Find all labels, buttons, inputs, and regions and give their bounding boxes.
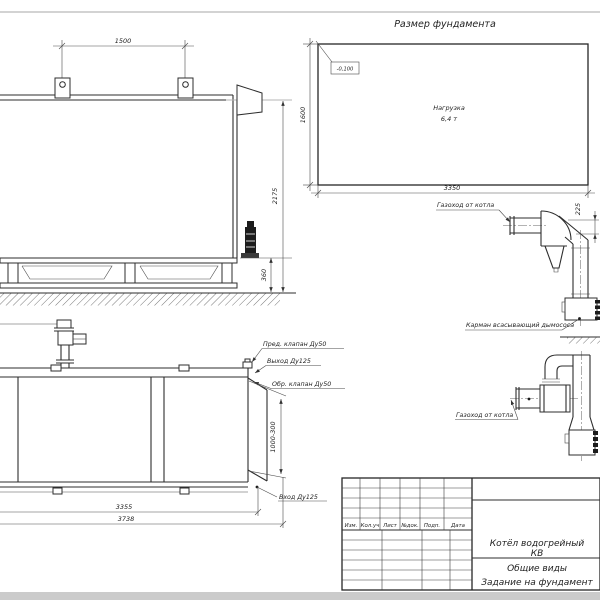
- dim-1600-text: 1600: [299, 107, 307, 124]
- tb-col-data: Дата: [450, 523, 465, 529]
- pocket-label-text: Карман всасывающий дымососа: [466, 322, 574, 329]
- dim-1500-text: 1500: [115, 37, 132, 45]
- flue-lower-duct-label: Газоход от котла: [456, 412, 513, 419]
- dim-3355-text: 3355: [116, 503, 133, 511]
- tb-product-line1: Котёл водогрейный: [490, 539, 585, 549]
- flue-label-upper: Газоход от котла: [436, 202, 510, 222]
- title-block: Изм. Кол.уч Лист №док. Подп. Дата Котёл …: [342, 478, 600, 590]
- elbow: [542, 355, 573, 382]
- dimension-1500: 1500: [53, 37, 194, 80]
- dim-2175-text: 2175: [271, 188, 279, 205]
- dimension-2175: 2175: [240, 101, 292, 292]
- flue-outlet: [237, 85, 262, 115]
- sheet-bottom-edge: [0, 592, 600, 600]
- drawing-canvas: Размер фундамента 1500: [0, 0, 600, 600]
- label-inlet: Вход Ду125: [256, 486, 327, 501]
- horizontal-duct: [516, 385, 570, 412]
- tb-col-list: Лист: [382, 523, 398, 529]
- flue-detail-lower: Газоход от котла: [455, 351, 598, 461]
- base-frame: [0, 258, 237, 288]
- foundation-title: Размер фундамента: [394, 19, 496, 30]
- sheet-top-edge: [0, 11, 600, 13]
- side-view: 1500: [0, 37, 296, 306]
- inlet-text: Вход Ду125: [279, 494, 318, 501]
- label-check-valve: Обр. клапан Ду50: [254, 380, 345, 389]
- valve-assembly: [54, 320, 86, 368]
- elevation-text: -0,100: [337, 67, 354, 73]
- flue-label-lower: Газоход от котла: [455, 400, 518, 420]
- dim-3738-text: 3738: [118, 515, 135, 523]
- elevation-mark: -0,100: [316, 41, 359, 74]
- ground-hatch: [0, 293, 296, 306]
- boiler-bottom-band: [0, 487, 248, 494]
- lifting-lug-right: [178, 78, 193, 98]
- dimension-1600: 1600: [299, 38, 318, 191]
- ground-hatch-detail: [560, 337, 600, 344]
- dim-1000-300-text: 1000-300: [269, 421, 277, 452]
- pocket-label: Карман всасывающий дымососа: [465, 317, 581, 330]
- tb-doc-line1: Общие виды: [507, 564, 567, 574]
- plan-view: Пред. клапан Ду50 Выход Ду125 Обр. клапа…: [0, 320, 345, 528]
- dim-3350-text: 3350: [444, 184, 461, 192]
- safety-valve-text: Пред. клапан Ду50: [263, 341, 326, 348]
- foundation-plan: -0,100 Нагрузка 6,4 т 1600 3350: [299, 38, 595, 198]
- dimension-360: 360: [260, 258, 271, 292]
- dimension-3738: 3738: [0, 477, 286, 528]
- dimension-3350: 3350: [311, 184, 595, 198]
- outlet-text: Выход Ду125: [267, 358, 311, 365]
- tb-col-podp: Подп.: [424, 523, 440, 529]
- suction-pocket: [562, 298, 600, 320]
- dim-360-text: 360: [260, 269, 268, 281]
- tb-col-koluch: Кол.уч: [361, 523, 380, 529]
- lifting-lug-left: [55, 78, 70, 98]
- dimension-3355: 3355: [0, 487, 261, 516]
- flue-detail-upper: 225 Газоход от котла Карман всасывающий …: [436, 202, 600, 344]
- drawing-sheet: Размер фундамента 1500: [0, 0, 600, 600]
- flue-upper-duct-label: Газоход от котла: [437, 202, 494, 209]
- load-text-1: Нагрузка: [433, 104, 465, 112]
- tb-col-ndok: №док.: [400, 523, 419, 529]
- tb-doc-line2: Задание на фундамент: [481, 578, 593, 588]
- burner-unit: [241, 221, 259, 258]
- tb-product-line2: КВ: [531, 549, 544, 559]
- dim-225-text: 225: [574, 203, 582, 215]
- boiler-body-plan: [0, 377, 267, 482]
- boiler-top-band: [0, 359, 252, 377]
- tb-col-izm: Изм.: [345, 523, 358, 529]
- check-valve-text: Обр. клапан Ду50: [272, 380, 331, 388]
- load-text-2: 6,4 т: [441, 115, 457, 123]
- label-outlet: Выход Ду125: [255, 358, 321, 373]
